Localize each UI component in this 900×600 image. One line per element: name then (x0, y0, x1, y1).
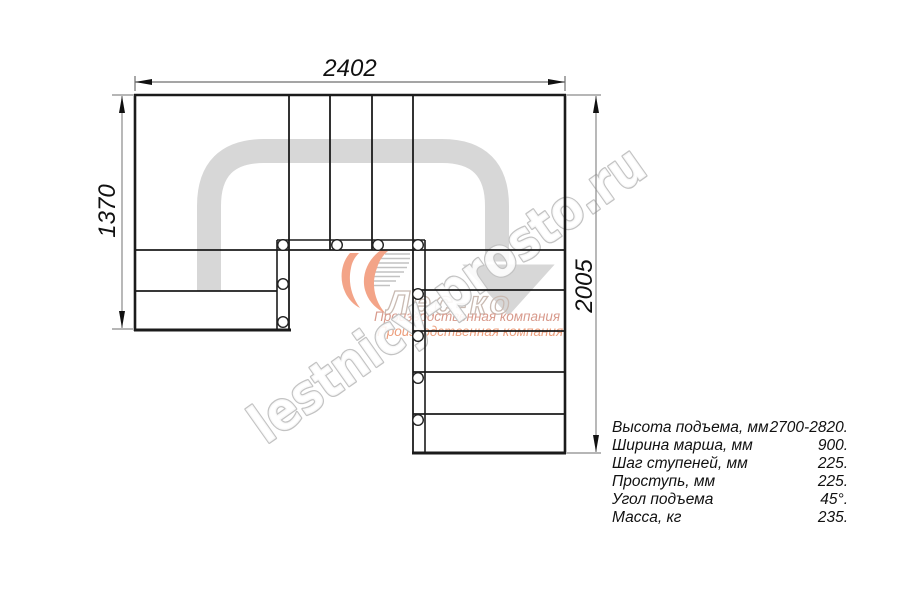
baluster-icon (413, 289, 424, 300)
spec-row: Ширина марша, мм 900. (612, 437, 848, 455)
baluster-icon (413, 331, 424, 342)
spec-label: Масса, кг (612, 509, 681, 527)
spec-label: Проступь, мм (612, 473, 715, 491)
baluster-icon (373, 240, 384, 251)
dim-value-top-width: 2402 (322, 55, 376, 82)
baluster-icon (332, 240, 343, 251)
dim-value-right-height: 2005 (571, 259, 598, 314)
dim-value-left-height: 1370 (94, 184, 121, 238)
baluster-icon (413, 415, 424, 426)
spec-row: Проступь, мм 225. (612, 473, 848, 491)
baluster-icon (278, 240, 289, 251)
baluster-icon (278, 317, 289, 328)
spec-value: 225. (818, 455, 848, 473)
spec-label: Высота подъема, мм (612, 419, 769, 437)
dim-arrow-icon (119, 311, 125, 328)
spec-row: Угол подъема 45°. (612, 491, 848, 509)
specs-table: Высота подъема, мм 2700-2820. Ширина мар… (612, 419, 848, 527)
spec-row: Высота подъема, мм 2700-2820. (612, 419, 848, 437)
dim-arrow-icon (548, 79, 565, 85)
stair-plan-page: { "dimensions": { "width_top": "2402", "… (0, 0, 900, 600)
spec-row: Шаг ступеней, мм 225. (612, 455, 848, 473)
dim-arrow-icon (593, 96, 599, 113)
dim-arrow-icon (593, 435, 599, 452)
spec-label: Угол подъема (612, 491, 713, 509)
spec-value: 45°. (820, 491, 848, 509)
spec-value: 225. (818, 473, 848, 491)
baluster-icon (413, 373, 424, 384)
spec-row: Масса, кг 235. (612, 509, 848, 527)
dimension-left-height: 1370 (94, 95, 133, 329)
dimension-right-height: 2005 (567, 95, 601, 453)
spec-value: 235. (818, 509, 848, 527)
baluster-icon (278, 279, 289, 290)
spec-label: Шаг ступеней, мм (612, 455, 748, 473)
dimension-top-width: 2402 (135, 55, 565, 91)
spec-value: 900. (818, 437, 848, 455)
baluster-icon (413, 240, 424, 251)
dim-arrow-icon (119, 96, 125, 113)
spec-label: Ширина марша, мм (612, 437, 753, 455)
spec-value: 2700-2820. (770, 419, 848, 437)
dim-arrow-icon (135, 79, 152, 85)
logo-swoosh-icon (342, 253, 360, 308)
